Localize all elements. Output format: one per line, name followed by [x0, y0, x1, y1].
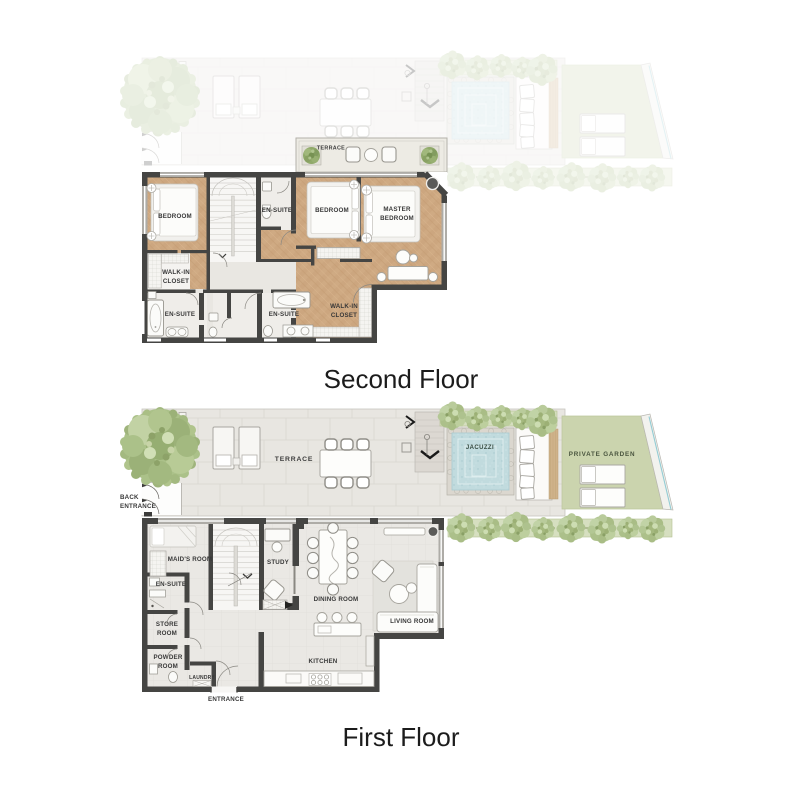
svg-text:MASTER: MASTER [383, 206, 411, 213]
svg-text:LAUNDRY: LAUNDRY [189, 675, 215, 681]
svg-text:WALK-IN: WALK-IN [330, 303, 358, 310]
svg-text:BEDROOM: BEDROOM [158, 213, 192, 220]
svg-text:LIVING ROOM: LIVING ROOM [390, 618, 434, 625]
svg-text:KITCHEN: KITCHEN [309, 658, 338, 665]
svg-text:MAID'S ROOM: MAID'S ROOM [168, 556, 213, 563]
svg-text:TERRACE: TERRACE [317, 146, 345, 152]
svg-text:JACUZZI: JACUZZI [466, 445, 494, 451]
svg-text:BACK: BACK [120, 494, 139, 501]
svg-text:STUDY: STUDY [267, 559, 290, 566]
svg-text:BEDROOM: BEDROOM [380, 215, 414, 222]
svg-text:WALK-IN: WALK-IN [162, 269, 190, 276]
svg-text:CLOSET: CLOSET [163, 278, 189, 285]
svg-text:Second Floor: Second Floor [324, 364, 479, 394]
svg-text:POWDER: POWDER [153, 654, 182, 661]
svg-text:ROOM: ROOM [158, 663, 178, 670]
svg-text:First Floor: First Floor [343, 722, 460, 752]
svg-text:ENTRANCE: ENTRANCE [120, 503, 156, 510]
svg-text:EN-SUITE: EN-SUITE [262, 207, 292, 214]
svg-text:BEDROOM: BEDROOM [315, 207, 349, 214]
svg-text:EN-SUITE: EN-SUITE [269, 311, 299, 318]
svg-text:EN-SUITE: EN-SUITE [165, 311, 195, 318]
svg-text:DINING ROOM: DINING ROOM [314, 596, 359, 603]
svg-text:EN-SUITE: EN-SUITE [156, 581, 186, 588]
svg-text:ENTRANCE: ENTRANCE [208, 696, 244, 703]
svg-text:CLOSET: CLOSET [331, 312, 357, 319]
svg-text:TERRACE: TERRACE [275, 456, 313, 463]
svg-text:PRIVATE GARDEN: PRIVATE GARDEN [569, 451, 636, 458]
svg-text:ROOM: ROOM [157, 630, 177, 637]
